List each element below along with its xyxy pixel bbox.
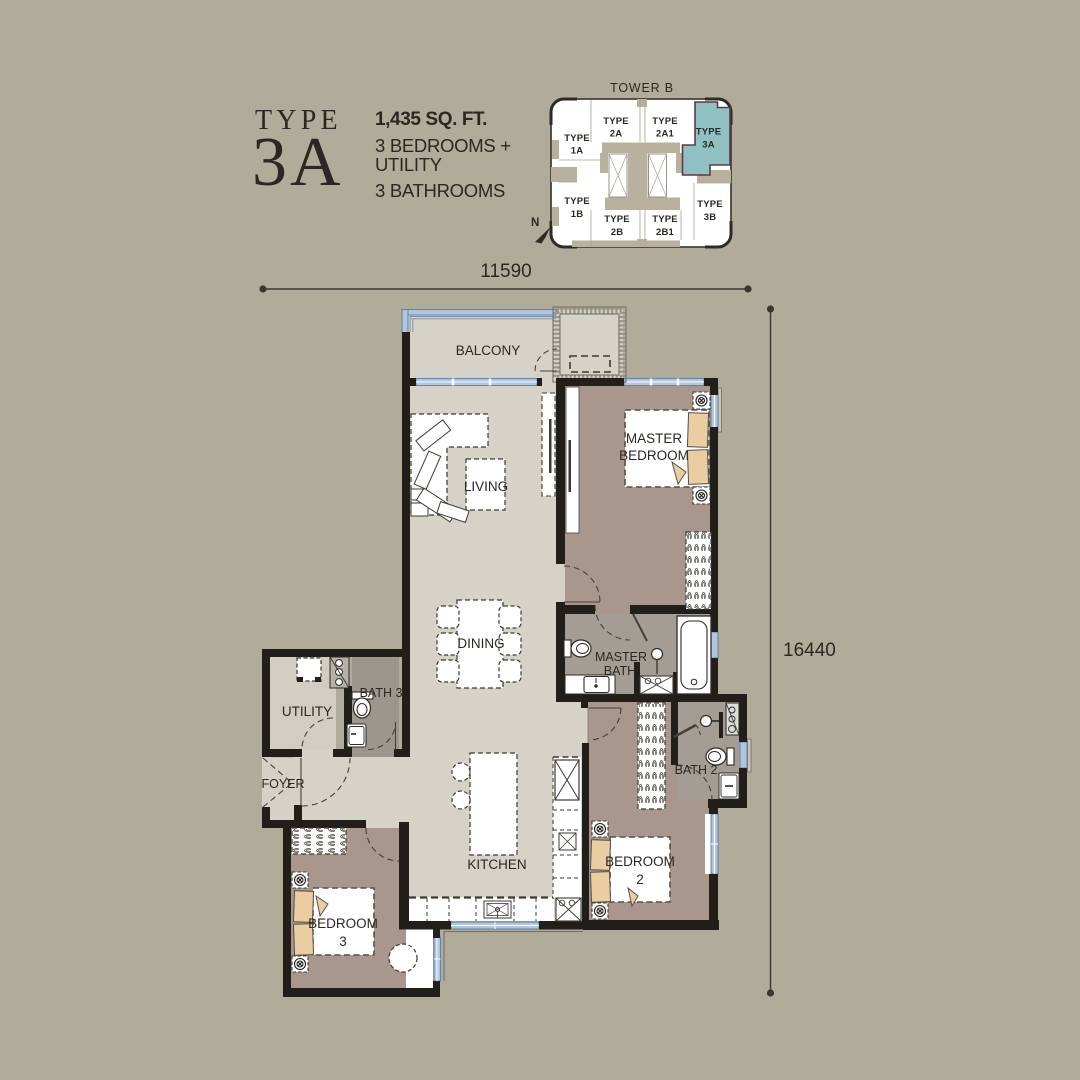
svg-text:LIVING: LIVING	[464, 479, 508, 494]
svg-text:TYPE: TYPE	[697, 199, 723, 210]
svg-text:BEDROOM: BEDROOM	[308, 916, 378, 931]
svg-text:11590: 11590	[480, 261, 531, 282]
svg-text:FOYER: FOYER	[261, 777, 304, 791]
svg-text:N: N	[531, 217, 539, 229]
svg-text:16440: 16440	[783, 640, 836, 661]
svg-text:2B1: 2B1	[656, 227, 675, 238]
svg-text:TYPE: TYPE	[564, 196, 590, 207]
svg-text:TYPE: TYPE	[652, 116, 678, 127]
svg-text:2B: 2B	[611, 227, 624, 238]
svg-text:BEDROOM: BEDROOM	[605, 854, 675, 869]
svg-text:KITCHEN: KITCHEN	[467, 857, 526, 872]
svg-text:DINING: DINING	[457, 636, 504, 651]
svg-text:BATH: BATH	[604, 664, 636, 678]
svg-text:BEDROOM: BEDROOM	[619, 448, 689, 463]
svg-text:3 BATHROOMS: 3 BATHROOMS	[375, 180, 505, 201]
svg-text:TYPE: TYPE	[564, 133, 590, 144]
svg-text:2A1: 2A1	[656, 129, 675, 140]
svg-text:TYPE: TYPE	[652, 214, 678, 225]
svg-text:2A: 2A	[610, 129, 623, 140]
svg-text:BATH 3: BATH 3	[360, 686, 403, 700]
svg-text:2: 2	[636, 872, 644, 887]
svg-text:MASTER: MASTER	[626, 431, 683, 446]
svg-text:BATH 2: BATH 2	[675, 763, 718, 777]
svg-text:3: 3	[339, 934, 347, 949]
svg-text:3A: 3A	[252, 124, 344, 201]
svg-text:BALCONY: BALCONY	[456, 343, 521, 358]
svg-text:1B: 1B	[571, 209, 584, 220]
svg-text:UTILITY: UTILITY	[282, 704, 332, 719]
svg-text:TYPE: TYPE	[696, 127, 722, 138]
svg-text:3 BEDROOMS +: 3 BEDROOMS +	[375, 135, 511, 156]
svg-text:TYPE: TYPE	[603, 116, 629, 127]
svg-text:UTILITY: UTILITY	[375, 154, 442, 175]
svg-text:3B: 3B	[704, 212, 717, 223]
svg-text:TYPE: TYPE	[604, 214, 630, 225]
svg-text:TOWER B: TOWER B	[610, 81, 674, 95]
svg-text:1,435 SQ. FT.: 1,435 SQ. FT.	[375, 109, 487, 130]
svg-text:MASTER: MASTER	[595, 650, 647, 664]
svg-text:1A: 1A	[571, 146, 584, 157]
svg-text:3A: 3A	[702, 140, 715, 151]
